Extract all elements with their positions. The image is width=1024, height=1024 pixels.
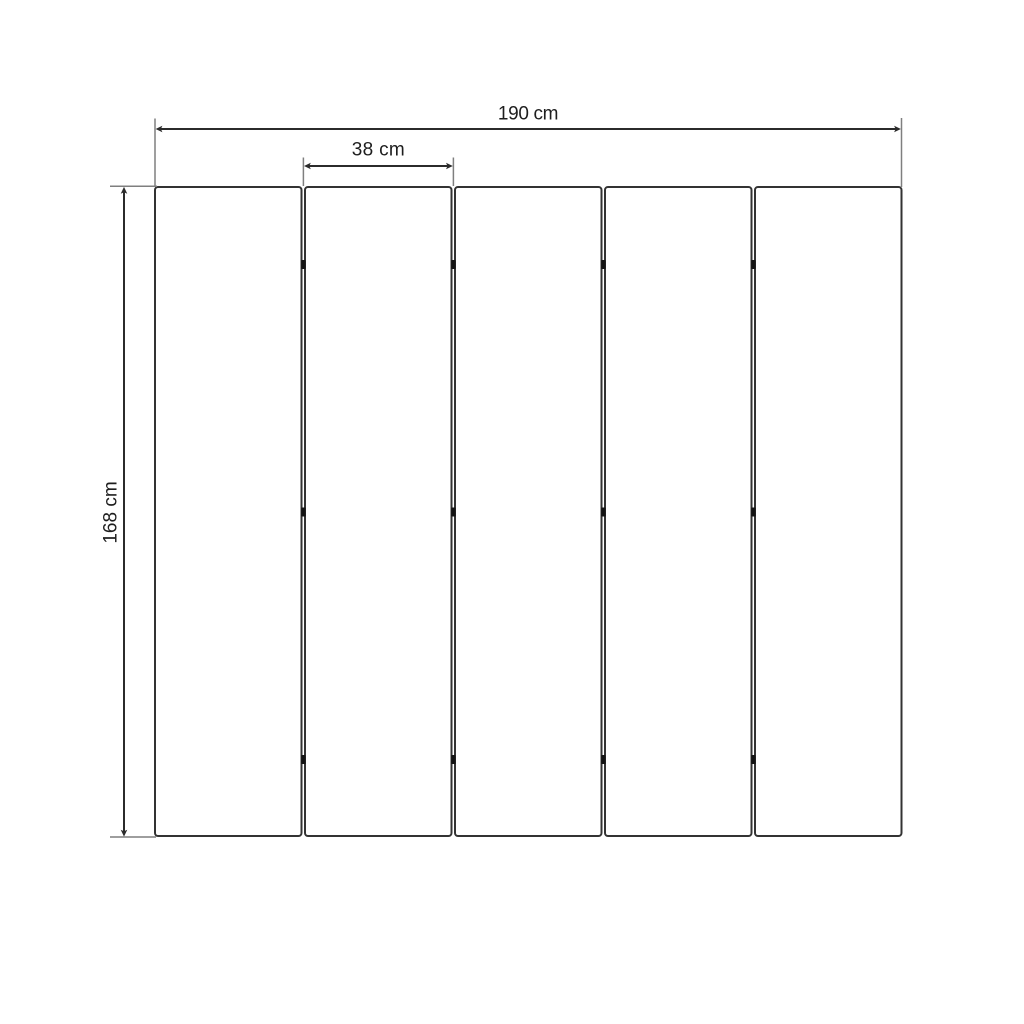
svg-text:168 cm: 168 cm: [101, 481, 122, 543]
svg-text:38 cm: 38 cm: [352, 140, 405, 161]
svg-text:190 cm: 190 cm: [498, 104, 558, 125]
